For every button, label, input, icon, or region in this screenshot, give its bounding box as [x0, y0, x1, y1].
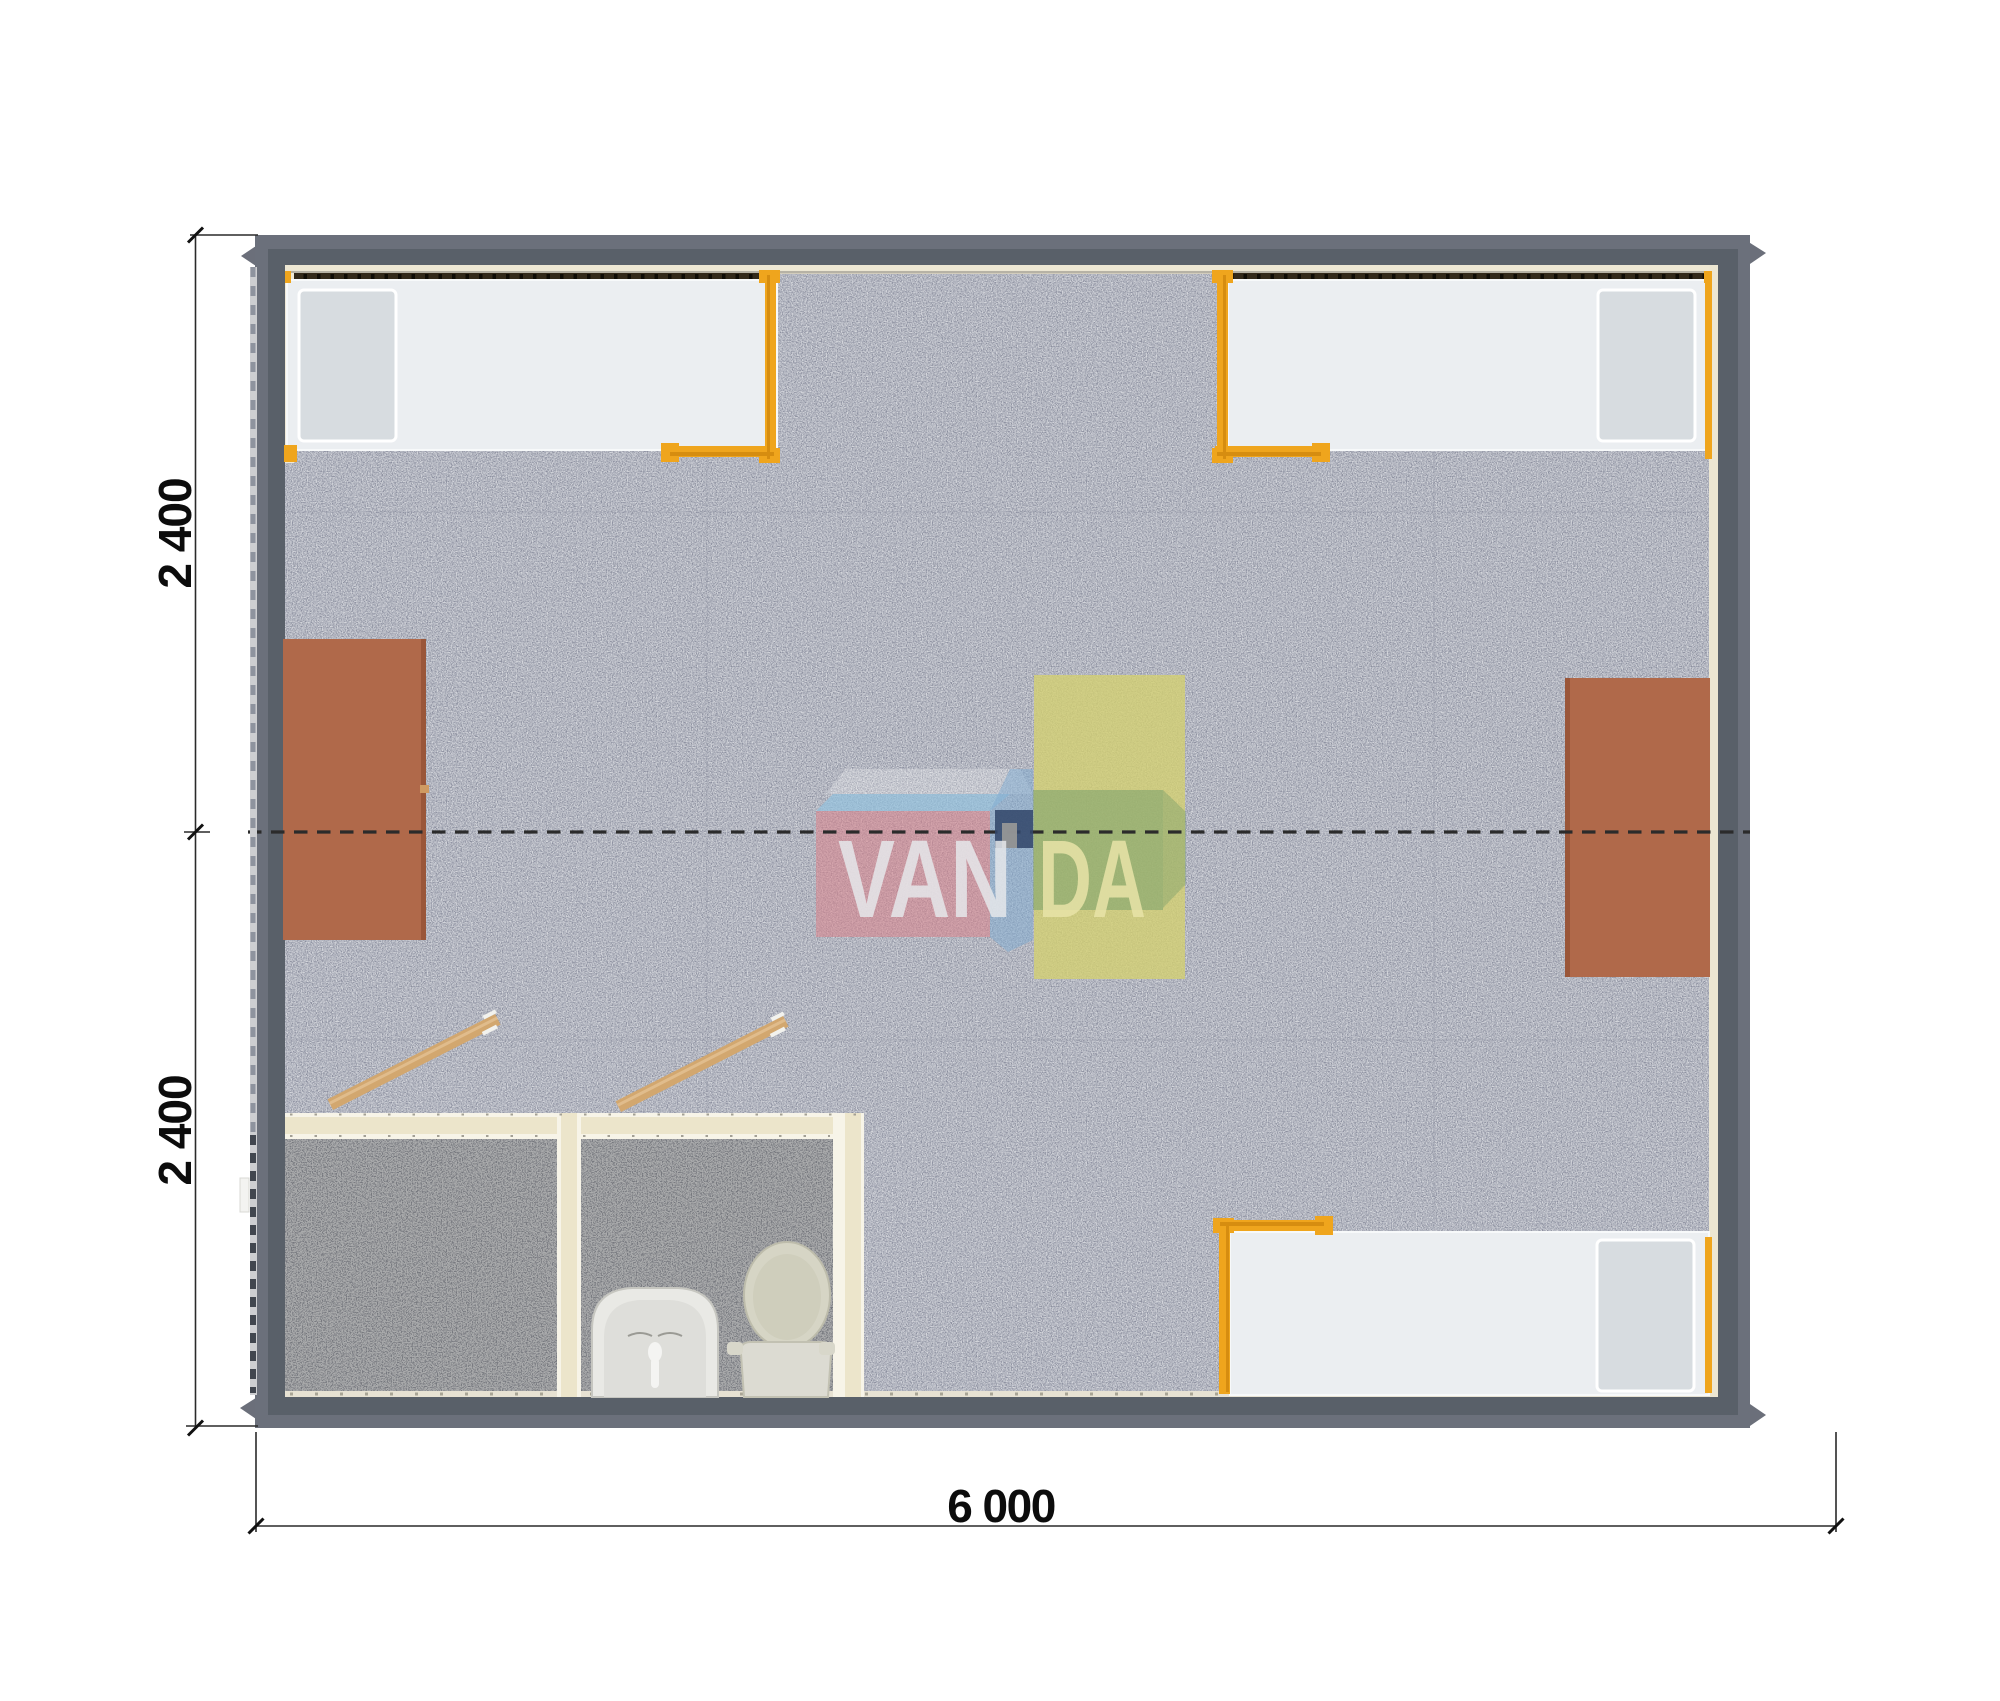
svg-text:DA: DA: [1038, 818, 1146, 941]
svg-text:6 000: 6 000: [947, 1480, 1055, 1532]
svg-text:2 400: 2 400: [149, 1075, 201, 1185]
svg-text:VAN: VAN: [838, 818, 1012, 941]
svg-text:2 400: 2 400: [149, 478, 201, 588]
